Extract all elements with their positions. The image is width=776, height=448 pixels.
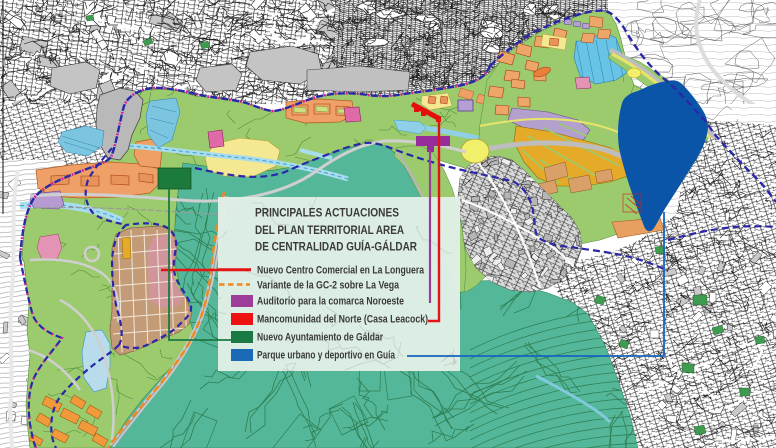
svg-text:Mancomunidad del Norte (Casa L: Mancomunidad del Norte (Casa Leacock) xyxy=(257,314,428,326)
svg-text:DE CENTRALIDAD GUÍA-GÁLDAR: DE CENTRALIDAD GUÍA-GÁLDAR xyxy=(255,239,417,254)
svg-text:PRINCIPALES ACTUACIONES: PRINCIPALES ACTUACIONES xyxy=(255,206,399,220)
svg-text:Auditorio para la comarca Noro: Auditorio para la comarca Noroeste xyxy=(257,296,404,308)
svg-text:DEL PLAN TERRITORIAL AREA: DEL PLAN TERRITORIAL AREA xyxy=(255,223,404,237)
svg-text:Nuevo Centro Comercial en La L: Nuevo Centro Comercial en La Longuera xyxy=(257,265,424,277)
svg-text:Parque urbano y deportivo en G: Parque urbano y deportivo en Guía xyxy=(257,350,395,362)
svg-text:Variante de la GC-2 sobre La V: Variante de la GC-2 sobre La Vega xyxy=(257,280,400,292)
svg-text:Nuevo Ayuntamiento de Gáldar: Nuevo Ayuntamiento de Gáldar xyxy=(257,332,383,344)
